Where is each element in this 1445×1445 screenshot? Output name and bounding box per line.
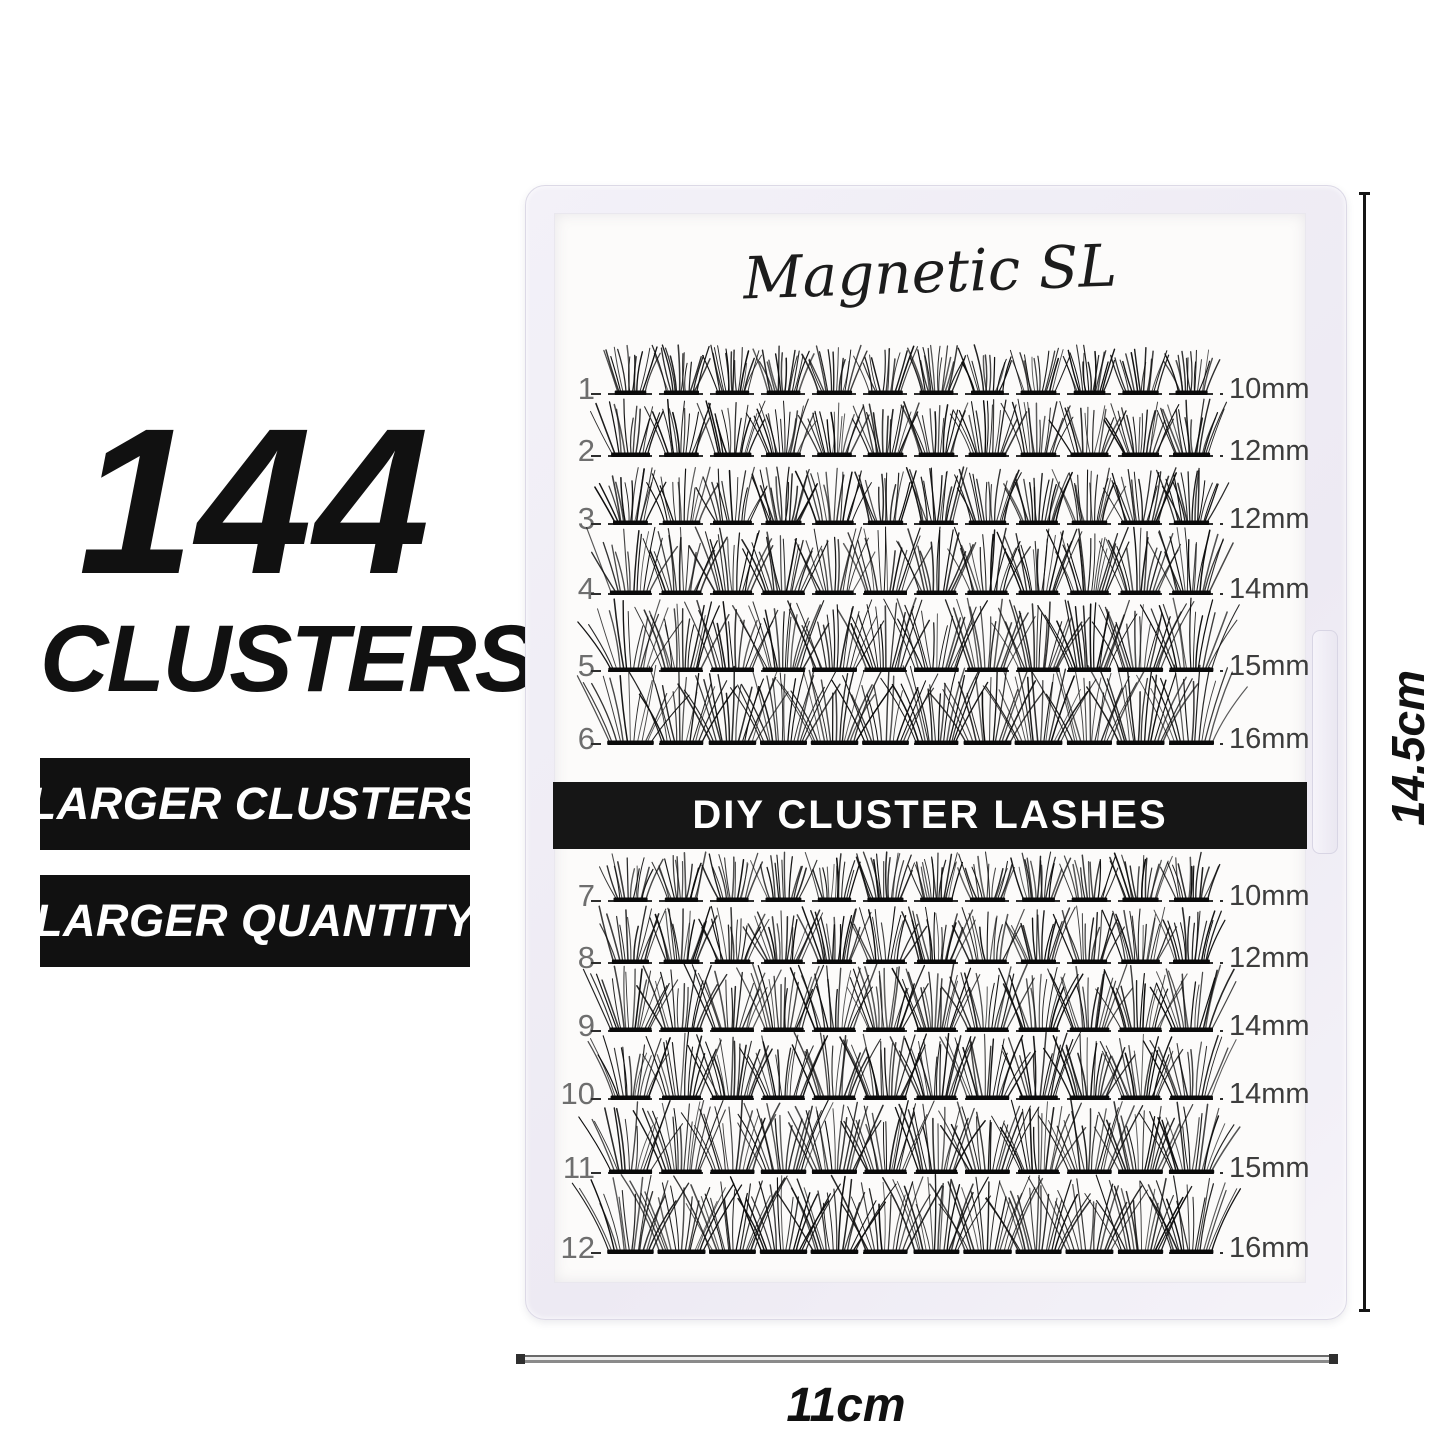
tray-hinge-tab <box>1312 630 1338 854</box>
lash-row: 11 15mm <box>555 214 1305 1282</box>
row-length-label: 14mm <box>1229 1012 1310 1041</box>
row-guide-dashes <box>591 670 1223 672</box>
row-length-label: 14mm <box>1229 575 1310 604</box>
lash-clusters <box>605 1168 1217 1258</box>
width-dimension-cap-right <box>1329 1354 1338 1364</box>
height-dimension-cap-bottom <box>1359 1309 1370 1312</box>
row-length-label: 16mm <box>1229 725 1310 754</box>
badge-larger-quantity: LARGER QUANTITY <box>40 875 470 967</box>
row-number: 1 <box>557 373 595 404</box>
row-guide-dashes <box>591 523 1223 525</box>
row-number: 11 <box>557 1152 595 1183</box>
lash-clusters <box>605 958 1217 1036</box>
height-dimension-line <box>1363 192 1366 1312</box>
lash-row: 4 14mm <box>555 214 1305 1282</box>
lash-clusters <box>605 521 1217 599</box>
row-number: 7 <box>557 880 595 911</box>
lash-row: 2 12mm <box>555 214 1305 1282</box>
lash-row: 1 10mm <box>555 214 1305 1282</box>
row-number: 3 <box>557 503 595 534</box>
row-length-label: 16mm <box>1229 1234 1310 1263</box>
lash-clusters <box>605 393 1217 461</box>
lash-clusters <box>605 461 1217 529</box>
tray-card: Magnetic SL DIY CLUSTER LASHES 1 10mm 2 … <box>554 213 1306 1283</box>
lash-row: 10 14mm <box>555 214 1305 1282</box>
row-number: 2 <box>557 435 595 466</box>
row-guide-dashes <box>591 1252 1223 1254</box>
row-number: 5 <box>557 650 595 681</box>
lash-row: 7 10mm <box>555 214 1305 1282</box>
row-length-label: 15mm <box>1229 652 1310 681</box>
lash-row: 3 12mm <box>555 214 1305 1282</box>
lash-clusters <box>605 846 1217 906</box>
badge-larger-clusters-label: LARGER CLUSTERS <box>29 778 482 830</box>
lash-row: 12 16mm <box>555 214 1305 1282</box>
width-dimension-line <box>518 1355 1336 1363</box>
brand-logo: Magnetic SL <box>554 225 1306 319</box>
lash-clusters <box>605 592 1217 676</box>
row-length-label: 14mm <box>1229 1080 1310 1109</box>
row-guide-dashes <box>591 743 1223 745</box>
row-length-label: 12mm <box>1229 944 1310 973</box>
product-image: 144 CLUSTERS LARGER CLUSTERS LARGER QUAN… <box>0 0 1445 1445</box>
row-length-label: 10mm <box>1229 375 1310 404</box>
row-guide-dashes <box>591 1098 1223 1100</box>
row-guide-dashes <box>591 1172 1223 1174</box>
lash-clusters <box>605 339 1217 399</box>
width-dimension-cap-left <box>516 1354 525 1364</box>
row-length-label: 10mm <box>1229 882 1310 911</box>
headline: 144 CLUSTERS <box>40 398 470 707</box>
row-guide-dashes <box>591 962 1223 964</box>
center-band-label: DIY CLUSTER LASHES <box>692 793 1167 838</box>
row-number: 6 <box>557 723 595 754</box>
lash-row: 6 16mm <box>555 214 1305 1282</box>
row-number: 9 <box>557 1010 595 1041</box>
row-number: 10 <box>557 1078 595 1109</box>
width-dimension-label: 11cm <box>786 1378 905 1433</box>
row-number: 4 <box>557 573 595 604</box>
lash-clusters <box>605 659 1217 749</box>
row-number: 8 <box>557 942 595 973</box>
row-length-label: 15mm <box>1229 1154 1310 1183</box>
lash-row: 8 12mm <box>555 214 1305 1282</box>
row-number: 12 <box>557 1232 595 1263</box>
headline-word: CLUSTERS <box>40 612 470 707</box>
center-band: DIY CLUSTER LASHES <box>553 782 1307 849</box>
lash-clusters <box>605 1026 1217 1104</box>
row-length-label: 12mm <box>1229 505 1310 534</box>
lash-clusters <box>605 1094 1217 1178</box>
row-guide-dashes <box>591 455 1223 457</box>
headline-number: 144 <box>40 398 470 606</box>
row-guide-dashes <box>591 393 1223 395</box>
lash-row: 9 14mm <box>555 214 1305 1282</box>
lash-row: 5 15mm <box>555 214 1305 1282</box>
row-guide-dashes <box>591 1030 1223 1032</box>
height-dimension-cap-top <box>1359 192 1370 195</box>
row-length-label: 12mm <box>1229 437 1310 466</box>
badge-larger-clusters: LARGER CLUSTERS <box>40 758 470 850</box>
lash-tray: Magnetic SL DIY CLUSTER LASHES 1 10mm 2 … <box>525 185 1347 1320</box>
row-guide-dashes <box>591 593 1223 595</box>
height-dimension-label: 14.5cm <box>1381 670 1435 826</box>
lash-clusters <box>605 900 1217 968</box>
row-guide-dashes <box>591 900 1223 902</box>
badge-larger-quantity-label: LARGER QUANTITY <box>35 895 475 947</box>
